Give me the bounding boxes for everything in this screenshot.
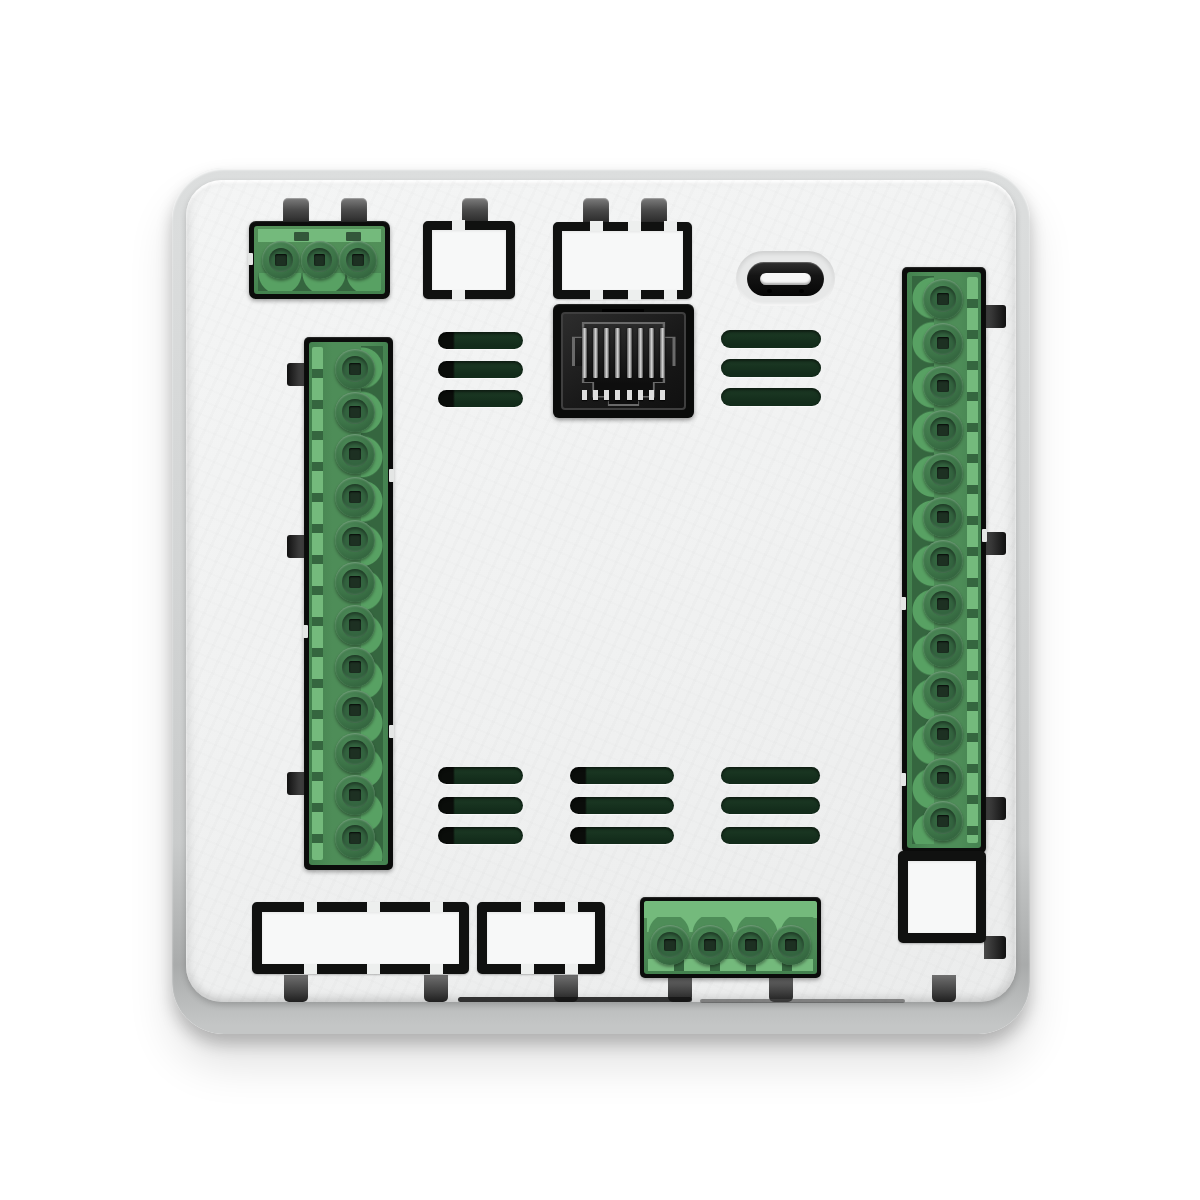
screw-terminal xyxy=(335,477,375,517)
border-notch xyxy=(901,597,906,610)
vent-slot xyxy=(721,767,820,784)
rj45-contact xyxy=(638,390,643,400)
screw-terminal xyxy=(771,925,811,965)
border-notch xyxy=(389,469,394,482)
product-photo-stage xyxy=(0,0,1200,1200)
terminal-block-left-12pin xyxy=(304,337,393,870)
screw-terminal xyxy=(335,434,375,474)
bottom-seam-line xyxy=(700,999,905,1003)
vent-slot xyxy=(570,767,674,784)
border-notch xyxy=(590,290,603,300)
screw-terminal xyxy=(301,241,339,279)
vent-group-top-right xyxy=(721,330,821,406)
vent-slot xyxy=(438,797,523,814)
vent-slot xyxy=(438,390,523,407)
border-notch xyxy=(248,253,253,265)
border-notch xyxy=(452,220,465,230)
usb-pin-dot xyxy=(799,289,804,293)
terminal-latch-strip xyxy=(967,277,978,843)
border-notch xyxy=(664,221,677,231)
border-notch xyxy=(521,902,534,912)
rj45-pin xyxy=(660,328,665,378)
border-notch xyxy=(982,529,987,542)
screw-terminal xyxy=(923,714,963,754)
vent-slot xyxy=(438,332,523,349)
border-notch xyxy=(367,902,380,912)
border-notch xyxy=(304,964,317,974)
screw-terminal xyxy=(335,733,375,773)
vent-slot xyxy=(721,330,821,348)
screw-terminal xyxy=(335,818,375,858)
rj45-contact xyxy=(627,390,632,400)
terminal-screws xyxy=(923,279,963,841)
border-notch xyxy=(901,773,906,786)
border-notch xyxy=(565,964,578,974)
vent-slot xyxy=(438,827,523,844)
rj45-contact xyxy=(649,390,654,400)
mounting-clip xyxy=(284,975,308,1002)
rj45-pin xyxy=(615,328,620,378)
usb-c-slot xyxy=(760,273,811,285)
terminal-screws xyxy=(650,925,811,965)
rj45-contact xyxy=(615,390,620,400)
border-notch xyxy=(430,902,443,912)
vent-slot xyxy=(721,797,820,814)
screw-terminal xyxy=(923,758,963,798)
usb-c-port xyxy=(747,262,824,296)
component-layer xyxy=(0,0,1200,1200)
ethernet-port xyxy=(553,304,694,418)
rj45-pin xyxy=(604,328,609,378)
border-notch xyxy=(565,902,578,912)
screw-terminal xyxy=(335,562,375,602)
border-notch xyxy=(303,625,308,638)
terminal-block-body xyxy=(309,342,388,865)
rj45-contact xyxy=(593,390,598,400)
mounting-clip xyxy=(424,975,448,1002)
terminal-block-4pin xyxy=(640,897,821,978)
terminal-block-body xyxy=(644,901,817,974)
mounting-clip xyxy=(984,532,1006,555)
mounting-clip xyxy=(984,797,1006,820)
rj45-contact xyxy=(660,390,665,400)
border-notch xyxy=(590,221,603,231)
screw-terminal xyxy=(335,392,375,432)
terminal-block-3pin xyxy=(249,221,390,299)
terminal-screws xyxy=(262,242,377,278)
knockout-top-wide xyxy=(553,222,692,299)
border-notch xyxy=(452,290,465,300)
terminal-latch-strip xyxy=(644,901,817,918)
screw-terminal xyxy=(923,584,963,624)
screw-terminal xyxy=(923,497,963,537)
vent-group-bottom-right xyxy=(721,767,820,844)
border-notch xyxy=(304,902,317,912)
screw-terminal xyxy=(923,801,963,841)
knockout-bottom-left xyxy=(252,902,469,974)
screw-terminal xyxy=(339,241,377,279)
terminal-block-right-13pin xyxy=(902,267,986,853)
vent-slot xyxy=(570,797,674,814)
border-notch xyxy=(521,964,534,974)
rj45-contacts xyxy=(582,390,666,400)
usb-c-recess xyxy=(736,251,835,306)
mounting-clip xyxy=(984,305,1006,328)
rj45-pin xyxy=(593,328,598,378)
screw-terminal xyxy=(335,775,375,815)
vent-slot xyxy=(721,827,820,844)
screw-terminal xyxy=(923,279,963,319)
screw-terminal xyxy=(923,627,963,667)
vent-group-bottom-center xyxy=(570,767,674,844)
mounting-clip xyxy=(769,975,793,1002)
screw-terminal xyxy=(923,323,963,363)
vent-slot xyxy=(438,361,523,378)
rj45-pin xyxy=(649,328,654,378)
rj45-pin xyxy=(638,328,643,378)
screw-terminal xyxy=(923,453,963,493)
screw-terminal xyxy=(262,241,300,279)
screw-terminal xyxy=(731,925,771,965)
border-notch xyxy=(389,725,394,738)
bottom-seam-line xyxy=(458,997,692,1002)
border-notch xyxy=(628,290,641,300)
vent-slot xyxy=(570,827,674,844)
vent-group-top-left xyxy=(438,332,523,407)
screw-terminal xyxy=(650,925,690,965)
knockout-bottom-center xyxy=(477,902,605,974)
screw-terminal xyxy=(335,690,375,730)
vent-slot xyxy=(721,388,821,406)
screw-terminal xyxy=(923,410,963,450)
border-notch xyxy=(430,964,443,974)
screw-terminal xyxy=(335,605,375,645)
mounting-clip xyxy=(984,936,1006,959)
vent-slot xyxy=(438,767,523,784)
vent-group-bottom-left xyxy=(438,767,523,844)
mounting-clip xyxy=(932,975,956,1002)
terminal-screws xyxy=(335,349,375,858)
knockout-right-bottom xyxy=(898,851,986,943)
screw-terminal xyxy=(923,671,963,711)
screw-terminal xyxy=(923,540,963,580)
rj45-pin xyxy=(582,328,587,378)
terminal-block-body xyxy=(254,226,385,294)
screw-terminal xyxy=(335,349,375,389)
rj45-contact xyxy=(604,390,609,400)
border-notch xyxy=(367,964,380,974)
terminal-block-body xyxy=(907,272,981,848)
border-notch xyxy=(628,221,641,231)
rj45-pins xyxy=(582,328,666,378)
terminal-latch-strip xyxy=(312,347,323,860)
rj45-contact xyxy=(582,390,587,400)
screw-terminal xyxy=(335,647,375,687)
screw-terminal xyxy=(335,520,375,560)
vent-slot xyxy=(721,359,821,377)
border-notch xyxy=(664,290,677,300)
knockout-top-small xyxy=(423,221,515,299)
screw-terminal xyxy=(690,925,730,965)
screw-terminal xyxy=(923,366,963,406)
rj45-frame xyxy=(561,312,686,410)
usb-pin-dot xyxy=(767,289,772,293)
rj45-pin xyxy=(627,328,632,378)
